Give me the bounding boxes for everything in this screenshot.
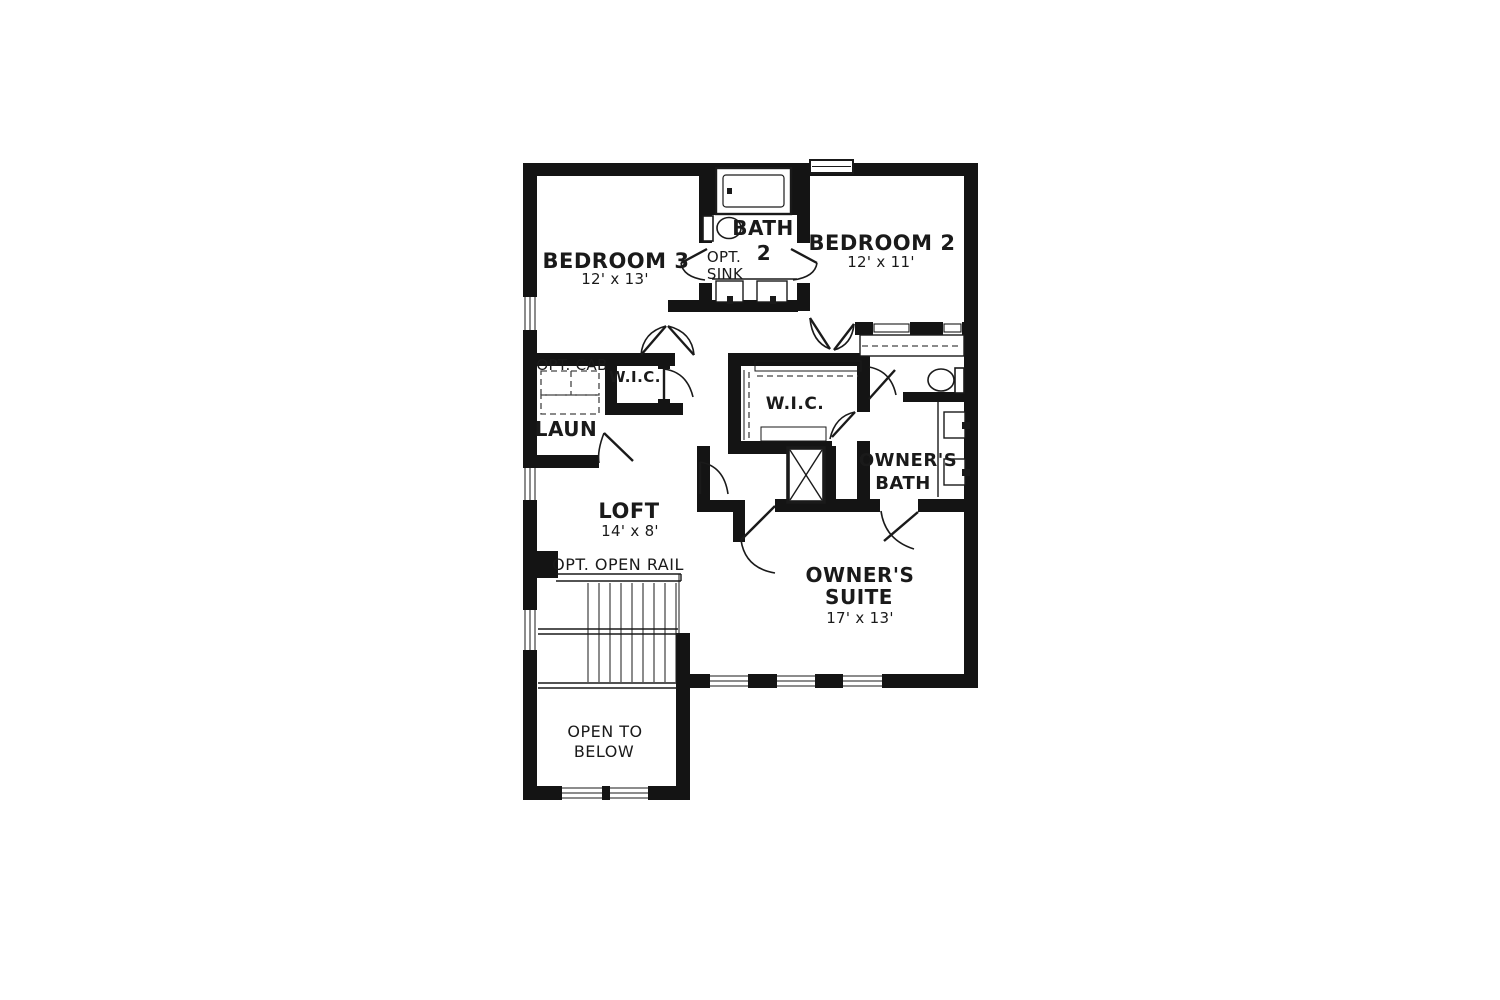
door-arc-icon [664,369,693,399]
door-arc-icon [881,511,918,549]
opt-cab-label: OPT. CAB [536,356,607,374]
owners-suite-dims: 17' x 13' [826,609,894,627]
opt-open-rail-label: OPT. OPEN RAIL [552,555,684,574]
stair-bottom-line [538,683,677,688]
bath2-label-line2: 2 [757,241,771,265]
opt-sink-label-line2: SINK [707,265,744,283]
laundry-label: LAUN [535,417,598,441]
door-arc-icon [599,433,633,463]
window-icon [843,674,882,688]
opt-sink-label-line1: OPT. [707,248,741,266]
hall-wic-label: W.I.C. [609,368,661,386]
door-arc-icon [641,326,694,355]
open-below-label-line1: OPEN TO [567,722,642,741]
open-rail-icon [556,574,681,581]
stair-treads [588,574,679,682]
bath2-label-line1: BATH [732,216,794,240]
window-icon [610,786,648,800]
door-arc-icon [741,506,775,573]
toilet-icon [928,368,964,393]
door-arc-icon [810,318,854,350]
window-icon [710,674,748,688]
open-below-label-line2: BELOW [574,742,634,761]
floor-plan: BEDROOM 3 12' x 13' BATH 2 OPT. SINK BED… [0,0,1500,1000]
owners-suite-label-line1: OWNER'S [806,563,915,587]
bathtub-icon [716,168,791,214]
owners-bath-label-line1: OWNER'S [859,450,957,471]
owners-wic-label: W.I.C. [766,394,825,414]
owners-bath-label-line2: BATH [875,473,931,494]
bedroom2-dims: 12' x 11' [847,253,915,271]
window-icon [562,786,602,800]
window-icon [523,610,537,650]
shower-icon [860,335,964,356]
owners-suite-label-line2: SUITE [825,585,893,609]
window-icon [523,297,537,330]
window-icon [810,160,853,173]
bedroom2-label: BEDROOM 2 [809,231,956,255]
stair-landing-line [538,629,678,634]
linen-closet-icon [788,448,824,502]
loft-label: LOFT [598,499,659,523]
bedroom3-dims: 12' x 13' [581,270,649,288]
opt-cabinets-icon [541,371,599,414]
loft-dims: 14' x 8' [601,522,659,540]
window-icon [777,674,815,688]
floor-plan-page: BEDROOM 3 12' x 13' BATH 2 OPT. SINK BED… [0,0,1500,1000]
